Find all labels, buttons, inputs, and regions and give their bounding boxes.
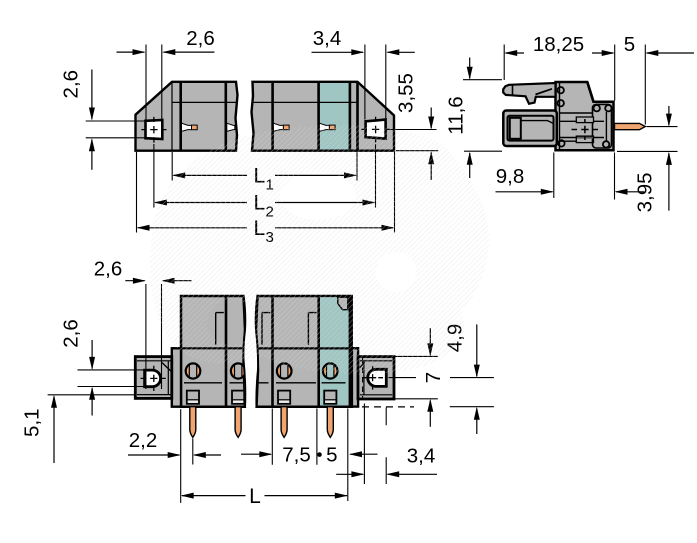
svg-text:7: 7 (422, 372, 445, 383)
svg-text:5,1: 5,1 (21, 408, 44, 437)
svg-text:2,6: 2,6 (60, 319, 83, 348)
svg-text:3,95: 3,95 (634, 172, 657, 212)
svg-text:3,4: 3,4 (407, 445, 436, 468)
svg-text:2,6: 2,6 (60, 70, 83, 99)
svg-text:5: 5 (624, 33, 635, 56)
svg-text:2,2: 2,2 (129, 429, 158, 452)
svg-text:9,8: 9,8 (496, 165, 525, 188)
svg-text:2,6: 2,6 (186, 27, 215, 50)
svg-text:11,6: 11,6 (445, 96, 468, 134)
svg-text:7,5: 7,5 (282, 444, 311, 467)
svg-text:3,55: 3,55 (395, 73, 418, 113)
svg-text:2,6: 2,6 (94, 258, 123, 281)
svg-text:18,25: 18,25 (533, 33, 584, 56)
svg-text:3,4: 3,4 (313, 27, 342, 50)
svg-text:L: L (249, 485, 261, 508)
svg-text:5: 5 (326, 444, 337, 467)
